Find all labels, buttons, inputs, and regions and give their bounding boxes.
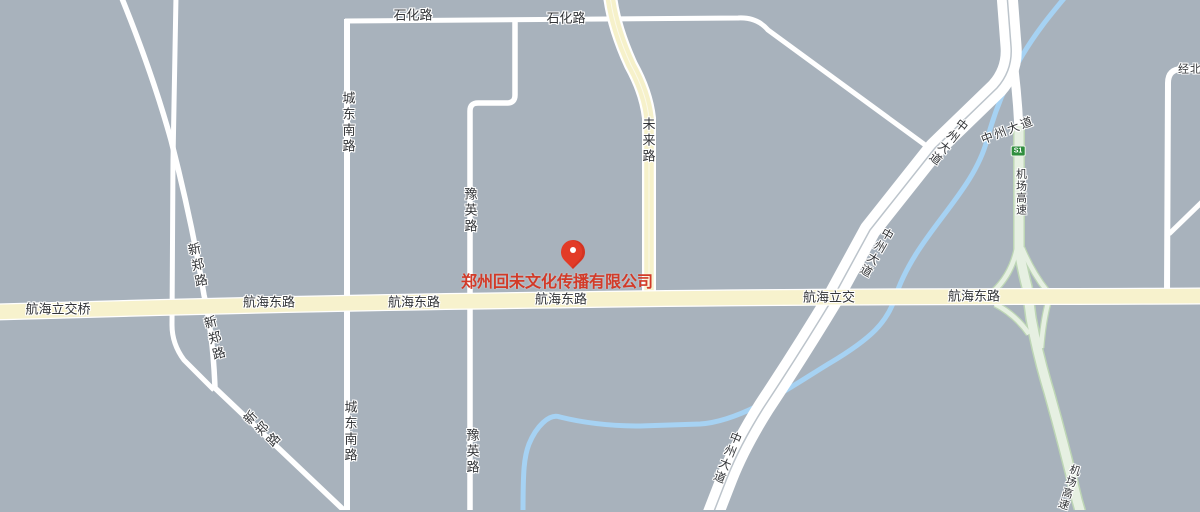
label-weilai-road: 未来路: [642, 117, 655, 165]
label-chengdongnan-road-bottom: 城东南路: [344, 400, 357, 464]
label-jingbei-road: 经北: [1178, 64, 1200, 77]
poi-marker-pin-dot: [570, 247, 576, 253]
map-screenshot: { "map_title": "Zhengzhou Hanghai East R…: [0, 0, 1200, 510]
road-jingbei-spur: [1169, 200, 1200, 234]
label-hanghai-east-3: 航海东路: [535, 293, 587, 308]
label-hanghai-east-4: 航海东路: [948, 290, 1000, 305]
road-jichang-expressway: [1019, 126, 1081, 510]
label-shihua-road-2: 石化路: [546, 12, 585, 27]
river: [523, 0, 1066, 510]
s1-expressway-badge: S1: [1011, 146, 1026, 157]
label-hanghai-east-1: 航海东路: [243, 296, 295, 311]
minor-roads: [121, 0, 1200, 510]
label-jichang-expressway-top: 机场高速: [1015, 168, 1026, 216]
label-hanghai-lijiaoqiao: 航海立交桥: [25, 303, 90, 318]
label-shihua-road-1: 石化路: [393, 9, 432, 24]
poi-company-name[interactable]: 郑州回未文化传播有限公司: [461, 268, 653, 292]
road-xinzheng: [121, 0, 350, 510]
map-roads-canvas: [0, 0, 1200, 510]
label-yuying-road-bottom: 豫英路: [466, 428, 479, 476]
label-yuying-road-top: 豫英路: [464, 187, 477, 235]
map-container[interactable]: 石化路 石化路 城东南路 城东南路 豫英路 豫英路 未来路 新郑路 新郑路 新郑…: [0, 0, 1200, 510]
road-zhongzhou: [713, 0, 1011, 510]
label-hanghai-lijiao: 航海立交: [803, 291, 855, 306]
label-hanghai-east-2: 航海东路: [388, 296, 440, 311]
road-jingbei: [1167, 69, 1200, 293]
label-chengdongnan-road-top: 城东南路: [342, 91, 355, 155]
